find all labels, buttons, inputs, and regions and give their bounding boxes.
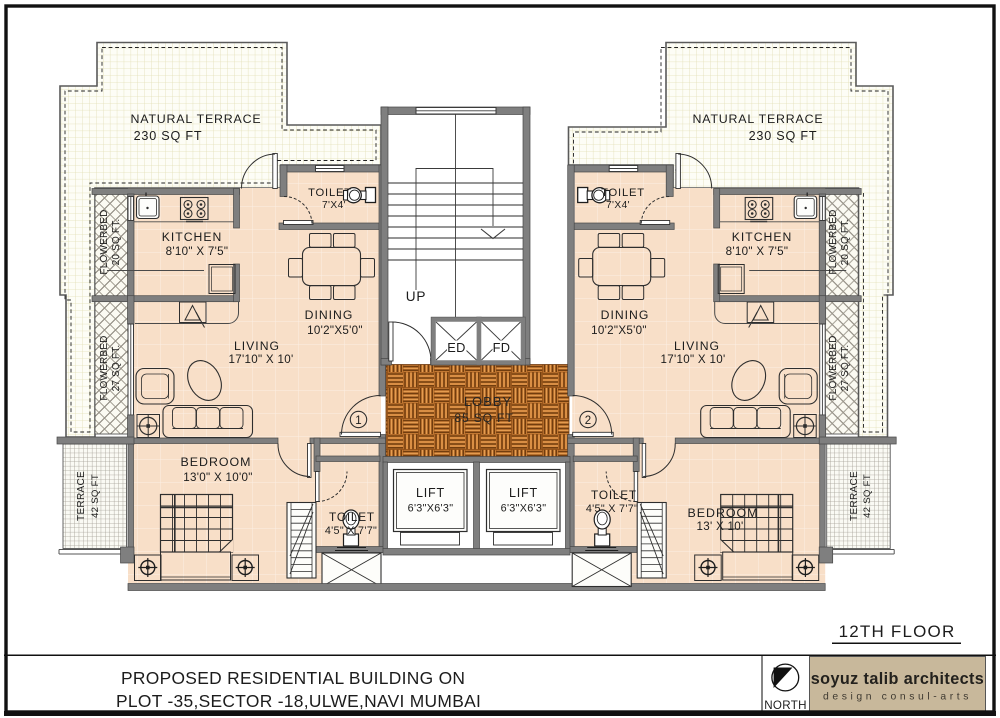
- svg-text:27 SQ FT.: 27 SQ FT.: [111, 345, 122, 392]
- svg-text:UP: UP: [406, 289, 426, 304]
- svg-text:TOILET: TOILET: [329, 510, 375, 524]
- svg-text:TOILET: TOILET: [601, 187, 645, 199]
- svg-text:KITCHEN: KITCHEN: [732, 230, 793, 244]
- svg-text:230 SQ FT: 230 SQ FT: [134, 129, 203, 143]
- svg-text:4'5" X 7'7": 4'5" X 7'7": [325, 525, 377, 537]
- svg-text:TOILET: TOILET: [308, 187, 352, 199]
- svg-text:12TH FLOOR: 12TH FLOOR: [839, 622, 956, 641]
- svg-text:7'X4': 7'X4': [606, 200, 630, 211]
- svg-text:20 SQ FT.: 20 SQ FT.: [840, 219, 851, 266]
- svg-text:BEDROOM: BEDROOM: [180, 455, 251, 469]
- svg-text:7'X4': 7'X4': [322, 200, 346, 211]
- svg-text:2: 2: [585, 415, 591, 427]
- svg-text:soyuz talib architects: soyuz talib architects: [811, 670, 984, 688]
- svg-text:42 SQ FT: 42 SQ FT: [90, 474, 101, 518]
- svg-text:8'10" X 7'5": 8'10" X 7'5": [166, 245, 229, 258]
- svg-text:TOILET: TOILET: [591, 488, 637, 502]
- svg-text:13' X 10': 13' X 10': [696, 520, 743, 533]
- svg-text:6'3"X6'3": 6'3"X6'3": [501, 503, 547, 515]
- svg-text:NATURAL TERRACE: NATURAL TERRACE: [131, 112, 262, 126]
- svg-text:4'5" X 7'7": 4'5" X 7'7": [586, 503, 638, 515]
- svg-text:DINING: DINING: [305, 308, 354, 322]
- svg-text:NORTH: NORTH: [764, 699, 807, 712]
- svg-text:FLOWERBED: FLOWERBED: [99, 335, 110, 400]
- svg-text:design consul-arts: design consul-arts: [823, 692, 972, 703]
- svg-text:LIVING: LIVING: [234, 339, 280, 353]
- svg-text:NATURAL TERRACE: NATURAL TERRACE: [693, 112, 824, 126]
- svg-text:10'2"X5'0": 10'2"X5'0": [591, 324, 647, 337]
- svg-text:1: 1: [355, 415, 361, 427]
- svg-text:27 SQ FT.: 27 SQ FT.: [840, 345, 851, 392]
- svg-text:20 SQ FT.: 20 SQ FT.: [111, 219, 122, 266]
- svg-text:FLOWERBED: FLOWERBED: [828, 209, 839, 274]
- svg-text:85 SQ FT: 85 SQ FT: [454, 411, 513, 425]
- svg-text:PROPOSED RESIDENTIAL BUILDING: PROPOSED RESIDENTIAL BUILDING ON: [121, 668, 465, 688]
- svg-text:ED: ED: [447, 340, 466, 355]
- svg-text:PLOT -35,SECTOR -18,ULWE,NAVI: PLOT -35,SECTOR -18,ULWE,NAVI MUMBAI: [116, 691, 481, 711]
- svg-text:FLOWERBED: FLOWERBED: [99, 209, 110, 274]
- svg-text:17'10" X 10': 17'10" X 10': [660, 353, 725, 366]
- svg-text:DINING: DINING: [601, 308, 650, 322]
- svg-text:13'0" X 10'0": 13'0" X 10'0": [183, 471, 252, 484]
- svg-text:42 SQ FT: 42 SQ FT: [862, 474, 873, 518]
- svg-text:17'10" X 10': 17'10" X 10': [228, 353, 293, 366]
- svg-text:FLOWERBED: FLOWERBED: [828, 335, 839, 400]
- svg-text:LIFT: LIFT: [416, 486, 445, 500]
- svg-text:LIVING: LIVING: [674, 339, 720, 353]
- svg-text:BEDROOM: BEDROOM: [687, 506, 758, 520]
- svg-text:6'3"X6'3": 6'3"X6'3": [408, 503, 454, 515]
- svg-text:LIFT: LIFT: [509, 486, 538, 500]
- svg-text:LOBBY: LOBBY: [464, 394, 512, 409]
- svg-text:KITCHEN: KITCHEN: [162, 230, 223, 244]
- svg-text:TERRACE: TERRACE: [76, 471, 87, 521]
- svg-text:230 SQ FT: 230 SQ FT: [749, 129, 818, 143]
- svg-text:10'2"X5'0": 10'2"X5'0": [307, 324, 363, 337]
- svg-text:8'10" X 7'5": 8'10" X 7'5": [726, 245, 789, 258]
- svg-text:TERRACE: TERRACE: [849, 471, 860, 521]
- svg-text:FD: FD: [493, 340, 511, 355]
